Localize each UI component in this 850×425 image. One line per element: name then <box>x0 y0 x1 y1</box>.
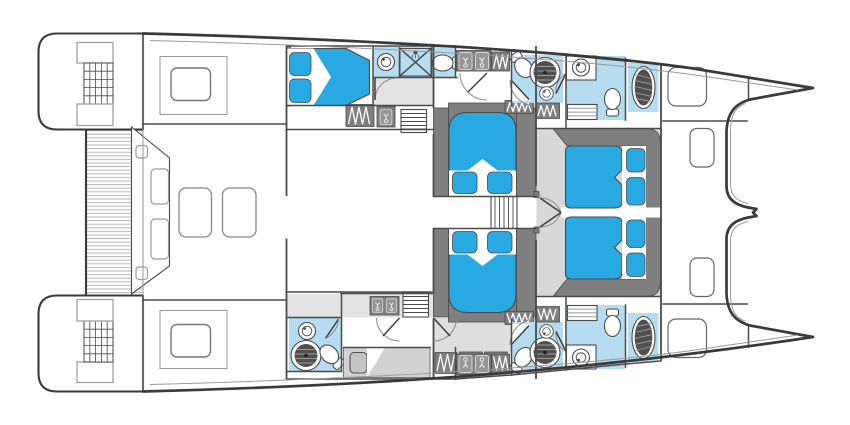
round-shower-icon <box>291 341 321 371</box>
washbasin-icon <box>378 54 395 71</box>
deck-fitting <box>136 267 148 280</box>
vanity-basin-icon <box>380 109 392 124</box>
port-corridor-floor <box>373 78 434 106</box>
catamaran-floor-plan <box>0 0 850 425</box>
pillow <box>290 53 312 76</box>
owner-bed-forward <box>566 146 647 208</box>
bed-divider <box>561 208 662 218</box>
bench-cushion <box>151 169 169 204</box>
washbasin-icon <box>299 323 316 340</box>
floor-plan-canvas <box>0 0 850 425</box>
vanity-basin-icon <box>386 299 396 313</box>
berth-pillow <box>350 353 367 374</box>
pillow <box>290 79 312 103</box>
mid-cabin-port <box>434 103 537 197</box>
bench-cushion <box>151 219 169 259</box>
vanity-basin-icon <box>372 299 382 313</box>
mid-cabin-starboard <box>434 229 537 323</box>
cockpit-seat <box>179 188 212 237</box>
deck-fitting <box>136 146 148 159</box>
cockpit-seat <box>223 188 257 237</box>
owner-bed-aft <box>566 217 647 279</box>
